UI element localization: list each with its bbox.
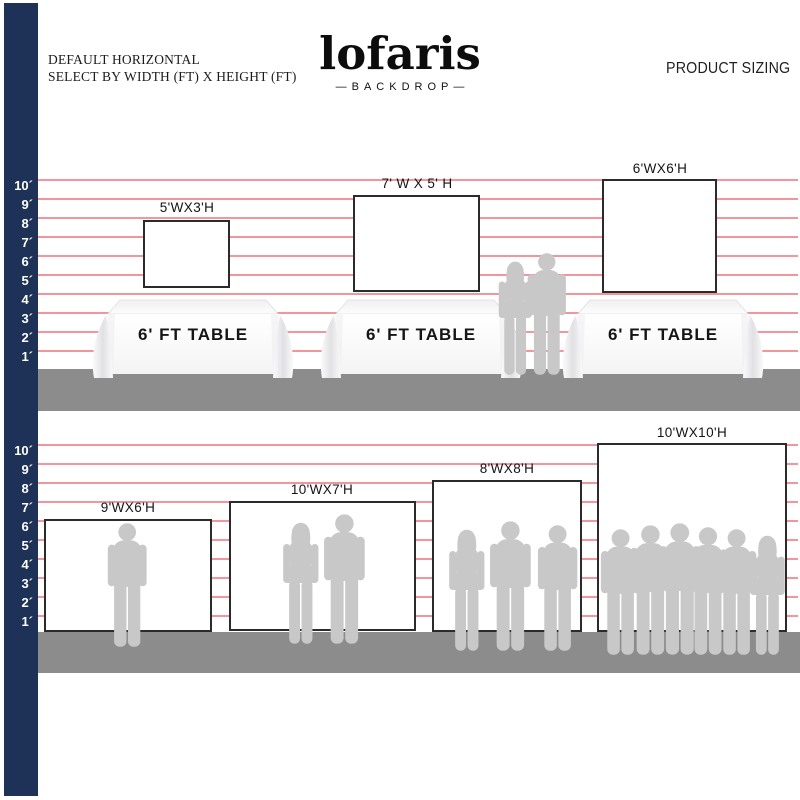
backdrop-5x3 bbox=[143, 220, 230, 288]
group-of-six-silhouette bbox=[595, 518, 795, 663]
table-label: 6' FT TABLE bbox=[366, 325, 476, 344]
foot-ruler-bar bbox=[4, 3, 38, 796]
ruler-label: 9´ bbox=[2, 461, 33, 479]
ruler-label: 4´ bbox=[2, 556, 33, 574]
ruler-label: 3´ bbox=[2, 310, 33, 328]
note-line2: SELECT BY WIDTH (FT) X HEIGHT (FT) bbox=[48, 69, 297, 86]
couple-silhouette bbox=[486, 250, 576, 378]
group-of-three-silhouette bbox=[432, 514, 587, 654]
ruler-label: 7´ bbox=[2, 499, 33, 517]
table-label: 6' FT TABLE bbox=[138, 325, 248, 344]
brand-wordmark: lofaris bbox=[290, 28, 510, 80]
six-foot-table: 6' FT TABLE bbox=[88, 296, 298, 380]
backdrop-size-label: 6'WX6'H bbox=[600, 161, 720, 176]
ruler-label: 1´ bbox=[2, 348, 33, 366]
brand-logo: lofaris —BACKDROP— bbox=[290, 28, 510, 93]
ruler-label: 10´ bbox=[2, 177, 33, 195]
ruler-label: 5´ bbox=[2, 272, 33, 290]
man-silhouette bbox=[96, 520, 160, 650]
ruler-label: 3´ bbox=[2, 575, 33, 593]
backdrop-size-label: 5'WX3'H bbox=[137, 200, 237, 215]
ruler-label: 2´ bbox=[2, 329, 33, 347]
backdrop-size-label: 9'WX6'H bbox=[68, 500, 188, 515]
backdrop-6x6 bbox=[602, 179, 717, 293]
ruler-label: 4´ bbox=[2, 291, 33, 309]
ruler-label: 5´ bbox=[2, 537, 33, 555]
ruler-label: 9´ bbox=[2, 196, 33, 214]
ruler-label: 8´ bbox=[2, 480, 33, 498]
ruler-label: 1´ bbox=[2, 613, 33, 631]
ruler-label: 7´ bbox=[2, 234, 33, 252]
note-line1: DEFAULT HORIZONTAL bbox=[48, 52, 297, 69]
ruler-label: 6´ bbox=[2, 253, 33, 271]
six-foot-table: 6' FT TABLE bbox=[558, 296, 768, 380]
backdrop-7x5 bbox=[353, 195, 480, 292]
backdrop-size-label: 8'WX8'H bbox=[437, 461, 577, 476]
ruler-label: 8´ bbox=[2, 215, 33, 233]
brand-tagline: —BACKDROP— bbox=[290, 81, 510, 93]
ruler-label: 10´ bbox=[2, 442, 33, 460]
size-selector-note: DEFAULT HORIZONTAL SELECT BY WIDTH (FT) … bbox=[48, 52, 297, 85]
page-title: PRODUCT SIZING bbox=[666, 60, 800, 78]
backdrop-size-label: 7' W X 5' H bbox=[347, 176, 487, 191]
table-label: 6' FT TABLE bbox=[608, 325, 718, 344]
ruler-label: 6´ bbox=[2, 518, 33, 536]
backdrop-size-label: 10'WX10'H bbox=[612, 425, 772, 440]
ruler-label: 2´ bbox=[2, 594, 33, 612]
couple-silhouette bbox=[266, 512, 386, 647]
backdrop-size-label: 10'WX7'H bbox=[252, 482, 392, 497]
foot-gridline bbox=[38, 293, 798, 295]
product-sizing-infographic: DEFAULT HORIZONTAL SELECT BY WIDTH (FT) … bbox=[0, 0, 800, 800]
